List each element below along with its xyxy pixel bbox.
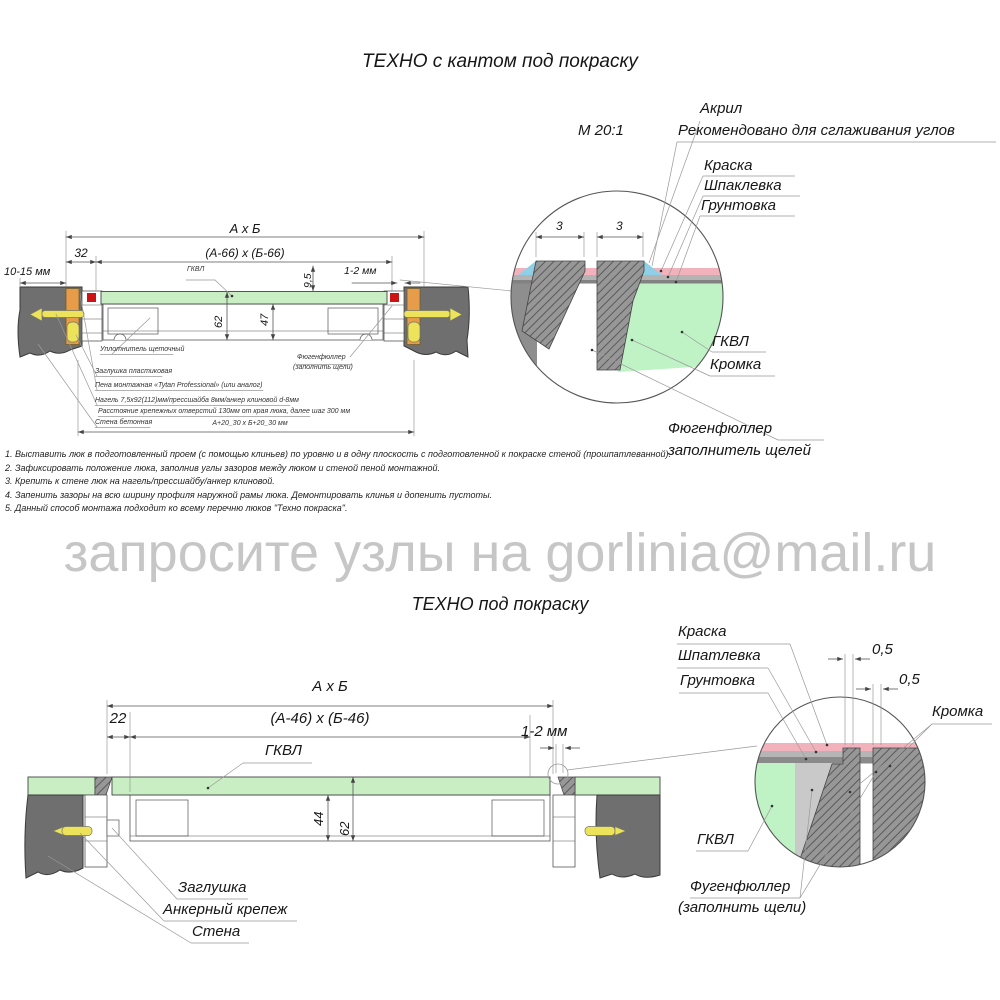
label-putty-bottom: Шпатлевка [678, 648, 761, 665]
dim-3-right: 3 [616, 220, 623, 233]
callout-anchor: Анкерный крепеж [163, 902, 287, 919]
callout-plug-bottom: Заглушка [178, 880, 246, 897]
dim-44: 44 [312, 812, 326, 826]
dim-1-2-bottom: 1-2 мм [521, 724, 567, 741]
dim-05-b: 0,5 [899, 672, 920, 689]
page-title-bottom: ТЕХНО под покраску [0, 595, 1000, 615]
note-2: 2. Зафиксировать положение люка, заполни… [5, 463, 685, 473]
note-5: 5. Данный способ монтажа подходит ко все… [5, 503, 685, 513]
callout-seal: Уплотнитель щеточный [100, 346, 184, 354]
section-top [18, 231, 512, 436]
dim-1-2-top: 1-2 мм [344, 266, 377, 278]
label-filler-detail-top-1: Фюгенфюллер [668, 421, 772, 438]
dim-inner-bottom: (А-46) х (Б-46) [230, 711, 410, 728]
note-4: 4. Запенить зазоры на всю ширину профиля… [5, 490, 685, 500]
label-gkvl-top: ГКВЛ [187, 266, 204, 274]
dim-05-a: 0,5 [872, 642, 893, 659]
label-edge-top: Кромка [710, 357, 761, 374]
section-bottom [25, 700, 757, 943]
page-title-top: ТЕХНО с кантом под покраску [0, 52, 1000, 73]
drawing-sheet: ТЕХНО с кантом под покраску А х Б (А-66)… [0, 0, 1000, 1000]
label-primer-top: Грунтовка [701, 198, 776, 215]
watermark-email: запросите узлы на gorlinia@mail.ru [0, 524, 1000, 583]
callout-concrete-wall: Стена бетонная [95, 419, 152, 427]
label-edge-bottom: Кромка [932, 704, 983, 721]
label-primer-bottom: Грунтовка [680, 673, 755, 690]
dim-inner-top: (А-66) х (Б-66) [160, 247, 330, 260]
dim-22: 22 [103, 711, 133, 728]
callout-filler-top-1: Фюгенфюллер [297, 354, 346, 362]
label-putty-top: Шпаклевка [704, 178, 782, 195]
label-acrylic: Акрил [700, 101, 742, 118]
note-1: 1. Выставить люк в подготовленный проем … [5, 449, 685, 459]
dim-47: 47 [259, 314, 271, 326]
dim-32: 32 [66, 247, 96, 260]
dim-bottom-top: А+20_30 х Б+20_30 мм [140, 420, 360, 428]
detail-scale: М 20:1 [578, 123, 624, 140]
note-3: 3. Крепить к стене люк на нагель/прессша… [5, 476, 685, 486]
dim-3-left: 3 [556, 220, 563, 233]
label-gkvl-bottom: ГКВЛ [265, 743, 302, 760]
label-recommended: Рекомендовано для сглаживания углов [678, 123, 955, 140]
label-gkvl-detail-bottom: ГКВЛ [697, 832, 734, 849]
label-gkvl-detail-top: ГКВЛ [712, 334, 749, 351]
installation-notes: 1. Выставить люк в подготовленный проем … [5, 449, 685, 517]
dim-10-15: 10-15 мм [4, 266, 50, 278]
callout-plastic-plug: Заглушка пластиковая [95, 368, 172, 376]
callout-spacing: Расстояние крепежных отверстий 130мм от … [98, 408, 350, 416]
callout-filler-top-2: (заполнить щели) [293, 364, 353, 372]
label-paint-top: Краска [704, 158, 752, 175]
label-paint-bottom: Краска [678, 624, 726, 641]
label-filler-detail-bottom-2: (заполнить щели) [678, 900, 806, 917]
dim-9-5: 9,5 [303, 273, 315, 288]
callout-nagel: Нагель 7,5х92(112)мм/прессшайба 8мм/анке… [95, 397, 299, 405]
dim-axb-top: А х Б [160, 222, 330, 236]
label-filler-detail-bottom-1: Фугенфюллер [690, 879, 790, 896]
dim-62-top: 62 [213, 316, 225, 328]
dim-62-bottom: 62 [338, 822, 352, 836]
label-filler-detail-top-2: заполнитель щелей [668, 443, 811, 460]
dim-axb-bottom: А х Б [240, 679, 420, 696]
callout-foam: Пена монтажная «Tytan Professional» (или… [95, 382, 262, 390]
callout-wall-bottom: Стена [192, 924, 240, 941]
